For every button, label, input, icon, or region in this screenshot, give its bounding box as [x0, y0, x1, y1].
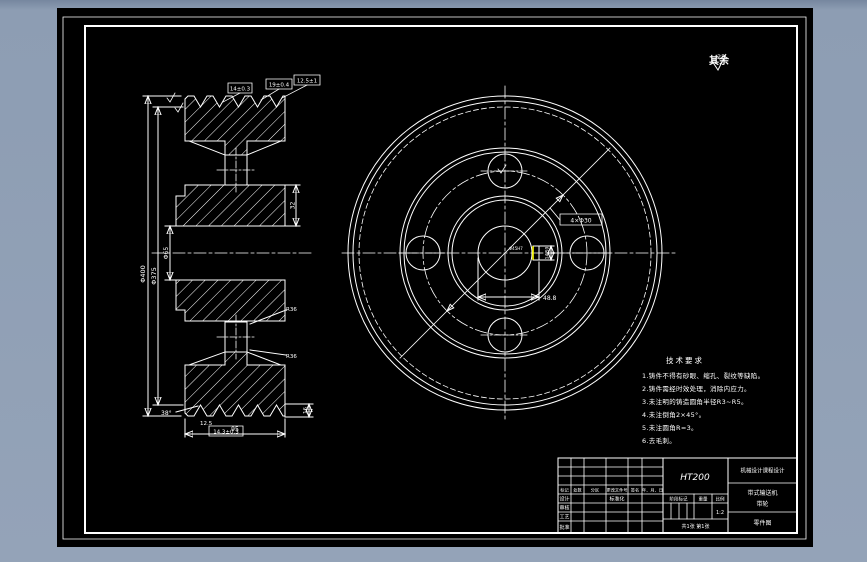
tb-sheet-info: 共1张 第1张	[682, 523, 710, 530]
tb-scale-label: 比例	[716, 496, 725, 503]
tb-row-approve: 批准	[559, 524, 569, 531]
tb-header-zone: 分区	[591, 487, 599, 494]
drawing-svg: Φ400 Φ375 Φ65 14±0.3 19±0.4 12.5±1 32 R3…	[57, 8, 813, 547]
front-view: 4×Φ30 14JS9 48.8 Φ45H7	[342, 86, 675, 422]
dim-side: 32	[290, 202, 297, 210]
tb-stage-label: 阶段标记	[670, 496, 688, 503]
groove-dim-2: 19±0.4	[269, 83, 290, 89]
tb-row-design: 设计	[559, 496, 569, 503]
dim-bore-diameter: Φ65	[163, 247, 170, 260]
dim-fillet-bottom: R36	[286, 354, 297, 360]
tb-header-count: 处数	[573, 487, 582, 494]
roughness-check-1	[167, 93, 175, 102]
keyway-width-dim: 14JS9	[545, 246, 551, 259]
surface-roughness-note: 其余 25	[709, 52, 729, 67]
tb-organization: 机械设计课程设计	[740, 467, 785, 475]
tb-doc-type: 零件图	[753, 519, 771, 527]
tb-weight-label: 重量	[699, 496, 708, 503]
tech-note-line: 6.去毛刺。	[642, 435, 812, 448]
tb-part-name: 带轮	[756, 500, 768, 508]
technical-requirements: 技术要求 1.铸件不得有砂眼、缩孔、裂纹等缺陷。 2.铸件需经时效处理，消除内应…	[642, 354, 812, 448]
rim-top-section	[185, 96, 285, 155]
keyway-depth-dim: 48.8	[543, 295, 557, 302]
dim-fillet-top: R36	[286, 307, 297, 313]
holes-callout: 4×Φ30	[570, 218, 591, 225]
roughness-value: 25	[717, 53, 725, 61]
tb-row-check: 审核	[559, 505, 569, 512]
tb-row-process: 工艺	[559, 515, 569, 521]
groove-dim-3: 12.5±1	[297, 79, 317, 85]
cad-viewer-canvas: { "colors": { "canvas_bg": "#8d9db3", "s…	[0, 0, 867, 562]
bore-dim: Φ45H7	[509, 246, 523, 251]
tb-header-docno: 更改文件号	[607, 487, 628, 494]
section-view: Φ400 Φ375 Φ65 14±0.3 19±0.4 12.5±1 32 R3…	[139, 75, 320, 437]
tech-note-line: 3.未注明的铸造圆角半径R3~R5。	[642, 396, 812, 409]
tb-standardization: 标准化	[609, 496, 624, 503]
drawing-sheet: Φ400 Φ375 Φ65 14±0.3 19±0.4 12.5±1 32 R3…	[57, 8, 813, 547]
outer-frame	[63, 17, 806, 539]
hub-lower-section	[176, 280, 285, 321]
tb-scale-value: 1:2	[716, 510, 724, 516]
dim-groove-angle: 38°	[161, 410, 172, 417]
tech-note-line: 4.未注倒角2×45°。	[642, 409, 812, 422]
groove-dim-1: 14±0.3	[230, 87, 251, 93]
title-block: HT200 标记 处数 分区 更改文件号 签名 年、月、日 设计 审核 工艺 批…	[558, 458, 797, 533]
tb-header-sign: 签名	[631, 487, 639, 494]
hub-upper-section	[176, 185, 285, 226]
tech-note-line: 1.铸件不得有砂眼、缩孔、裂纹等缺陷。	[642, 370, 812, 383]
dim-overall-width: 95	[231, 426, 239, 433]
rim-bottom-section	[185, 352, 285, 416]
keyway-dimensions	[478, 246, 554, 300]
roughness-symbol-icon: 25	[709, 52, 735, 72]
dim-pitch-diameter: Φ375	[150, 267, 158, 285]
dim-outer-diameter: Φ400	[139, 265, 147, 283]
tech-note-line: 5.未注圆角R=3。	[642, 422, 812, 435]
tb-product-name: 带式输送机	[747, 489, 777, 497]
tb-header-date: 年、月、日	[642, 487, 663, 494]
tech-note-line: 2.铸件需经时效处理，消除内应力。	[642, 383, 812, 396]
material-grade: HT200	[680, 473, 710, 483]
tech-notes-title: 技术要求	[666, 354, 812, 367]
tb-header-mark: 标记	[560, 487, 569, 494]
dim-tooth: 16	[303, 407, 309, 414]
